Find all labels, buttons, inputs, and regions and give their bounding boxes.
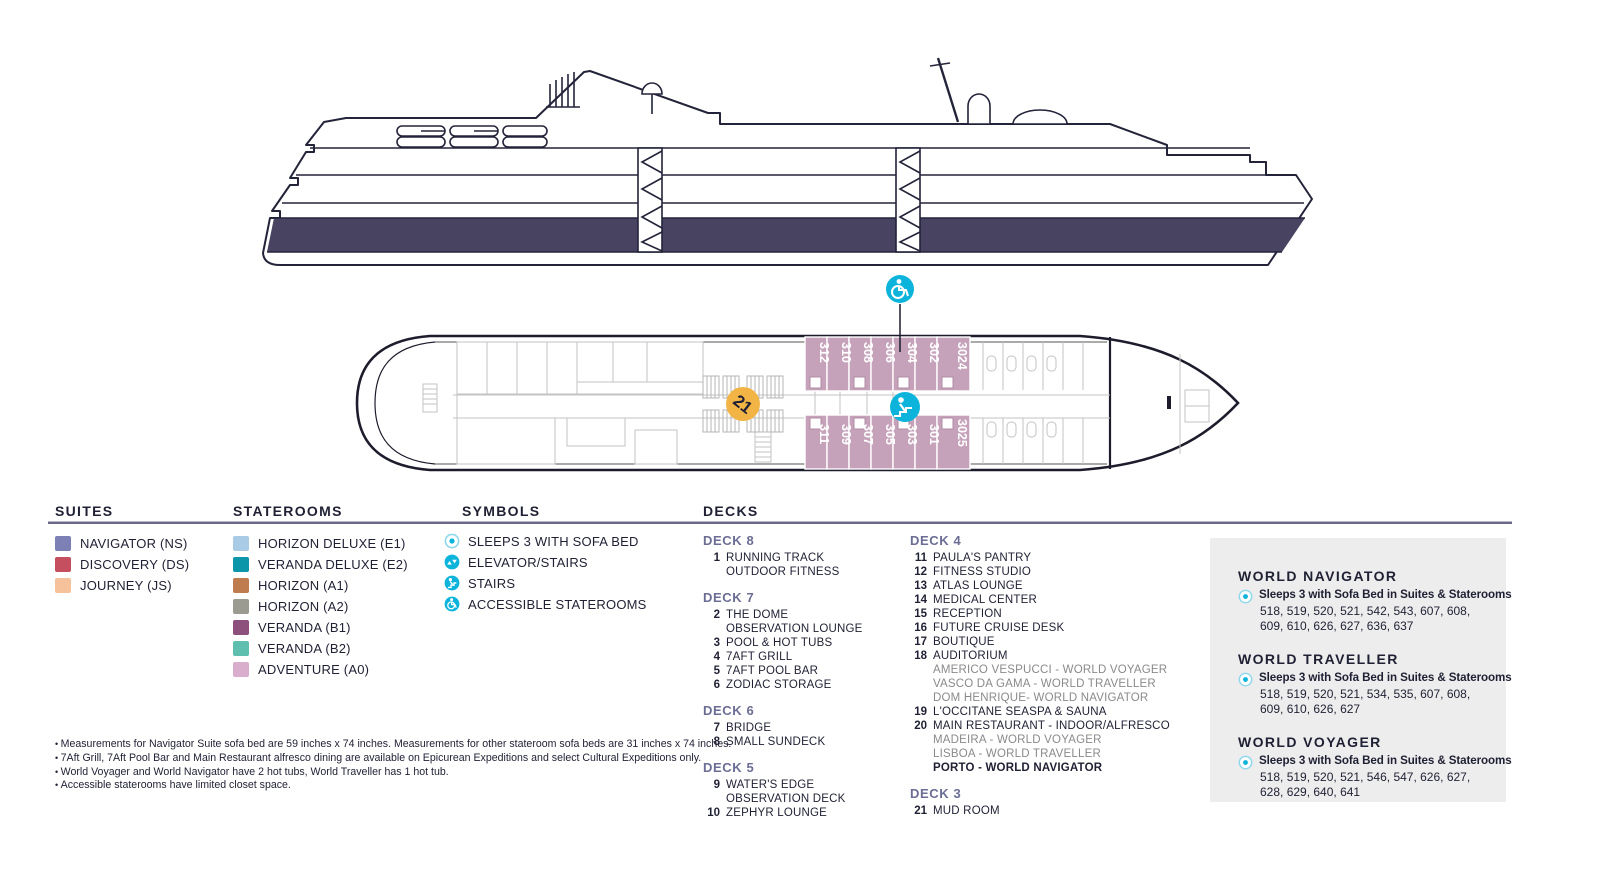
legend-item: ADVENTURE (A0) bbox=[233, 661, 408, 677]
staterooms-header: STATEROOMS bbox=[233, 503, 343, 519]
cabin-number: 301 bbox=[927, 424, 941, 445]
suites-legend: NAVIGATOR (NS) DISCOVERY (DS) JOURNEY (J… bbox=[55, 535, 189, 593]
cabin-number: 309 bbox=[839, 424, 853, 445]
suites-header: SUITES bbox=[55, 503, 113, 519]
legend-item: VERANDA DELUXE (E2) bbox=[233, 556, 408, 572]
legend-item: DISCOVERY (DS) bbox=[55, 556, 189, 572]
color-swatch bbox=[233, 536, 249, 551]
sleeps3-icon bbox=[1238, 672, 1253, 687]
legend-item: SLEEPS 3 WITH SOFA BED bbox=[444, 533, 647, 549]
cabin-number: 310 bbox=[839, 342, 853, 363]
symbols-legend: SLEEPS 3 WITH SOFA BED ELEVATOR/STAIRS S… bbox=[444, 533, 647, 612]
cabins-bottom-row: 311 309 307 305 303 301 3025 bbox=[805, 415, 970, 469]
color-swatch bbox=[233, 599, 249, 614]
color-swatch bbox=[233, 662, 249, 677]
legend-divider bbox=[48, 521, 1512, 524]
plan-stairs-icon bbox=[890, 392, 920, 422]
deck-plan-page: { "colors":{ "accent_cyan":"#0cb4dc","ma… bbox=[0, 0, 1600, 870]
deck-group: DECK 3 21MUD ROOM bbox=[910, 786, 1180, 818]
deck-group: DECK 8 1RUNNING TRACK OUTDOOR FITNESS bbox=[703, 533, 908, 579]
color-swatch bbox=[55, 536, 71, 551]
deck-group: DECK 6 7BRIDGE 8SMALL SUNDECK bbox=[703, 703, 908, 749]
mudroom-marker: 21 bbox=[726, 387, 760, 421]
deck-group: DECK 7 2THE DOME OBSERVATION LOUNGE 3POO… bbox=[703, 590, 908, 692]
sleeps3-icon bbox=[1238, 755, 1253, 770]
footnote: Accessible staterooms have limited close… bbox=[55, 779, 731, 793]
footnote: Measurements for Navigator Suite sofa be… bbox=[55, 738, 731, 752]
legend-item: VERANDA (B2) bbox=[233, 640, 408, 656]
color-swatch bbox=[233, 578, 249, 593]
deck-group: DECK 5 9WATER'S EDGE OBSERVATION DECK 10… bbox=[703, 760, 908, 820]
color-swatch bbox=[233, 641, 249, 656]
legend-item: VERANDA (B1) bbox=[233, 619, 408, 635]
bow-marker bbox=[1167, 396, 1171, 409]
cabin-number: 306 bbox=[883, 342, 897, 363]
legend-item: HORIZON (A1) bbox=[233, 577, 408, 593]
ships-panel: WORLD NAVIGATOR Sleeps 3 with Sofa Bed i… bbox=[1210, 538, 1506, 802]
sleeps3-icon bbox=[444, 533, 460, 549]
sleeps3-icon bbox=[1238, 589, 1253, 604]
legend-item: NAVIGATOR (NS) bbox=[55, 535, 189, 551]
deck-group: DECK 4 11PAULA'S PANTRY 12FITNESS STUDIO… bbox=[910, 533, 1180, 775]
symbols-header: SYMBOLS bbox=[462, 503, 540, 519]
legend-item: HORIZON DELUXE (E1) bbox=[233, 535, 408, 551]
cabin-number: 304 bbox=[905, 342, 919, 363]
elevator-icon bbox=[444, 554, 460, 570]
cabin-number: 303 bbox=[905, 424, 919, 445]
ship-side-profile bbox=[250, 22, 1330, 272]
cabin-number: 3025 bbox=[955, 419, 969, 447]
cabins-top-row: 312 310 308 306 304 302 3024 bbox=[805, 337, 970, 391]
footnote: World Voyager and World Navigator have 2… bbox=[55, 766, 731, 780]
zodiac-boats bbox=[397, 126, 547, 147]
legend-item: ACCESSIBLE STATEROOMS bbox=[444, 596, 647, 612]
ship-block: WORLD VOYAGER Sleeps 3 with Sofa Bed in … bbox=[1238, 734, 1506, 800]
cabin-number: 305 bbox=[883, 424, 897, 445]
ship-block: WORLD TRAVELLER Sleeps 3 with Sofa Bed i… bbox=[1238, 651, 1506, 717]
footnote: 7Aft Grill, 7Aft Pool Bar and Main Resta… bbox=[55, 752, 731, 766]
plan-hull-outline bbox=[357, 336, 1238, 470]
decks-column-1: DECK 8 1RUNNING TRACK OUTDOOR FITNESS DE… bbox=[703, 533, 908, 831]
deck3-highlight-band bbox=[267, 218, 1305, 252]
color-swatch bbox=[233, 557, 249, 572]
cabin-number: 307 bbox=[861, 424, 875, 445]
deck3-plan: 312 310 308 306 304 302 3024 311 309 307… bbox=[335, 272, 1250, 487]
color-swatch bbox=[233, 620, 249, 635]
footnotes: Measurements for Navigator Suite sofa be… bbox=[55, 738, 731, 793]
ship-block: WORLD NAVIGATOR Sleeps 3 with Sofa Bed i… bbox=[1238, 568, 1506, 634]
staterooms-legend: HORIZON DELUXE (E1) VERANDA DELUXE (E2) … bbox=[233, 535, 408, 677]
legend-item: ELEVATOR/STAIRS bbox=[444, 554, 647, 570]
decks-header: DECKS bbox=[703, 503, 759, 519]
cabin-number: 308 bbox=[861, 342, 875, 363]
forward-mast-group bbox=[930, 58, 1067, 124]
accessible-icon bbox=[444, 596, 460, 612]
cabin-number: 3024 bbox=[955, 342, 969, 370]
color-swatch bbox=[55, 557, 71, 572]
decks-column-2: DECK 4 11PAULA'S PANTRY 12FITNESS STUDIO… bbox=[910, 533, 1180, 829]
cabin-number: 312 bbox=[817, 342, 831, 363]
cabin-number: 302 bbox=[927, 342, 941, 363]
stairs-icon bbox=[444, 575, 460, 591]
legend-item: JOURNEY (JS) bbox=[55, 577, 189, 593]
color-swatch bbox=[55, 578, 71, 593]
legend-item: HORIZON (A2) bbox=[233, 598, 408, 614]
cabin-number: 311 bbox=[817, 424, 831, 444]
legend-item: STAIRS bbox=[444, 575, 647, 591]
